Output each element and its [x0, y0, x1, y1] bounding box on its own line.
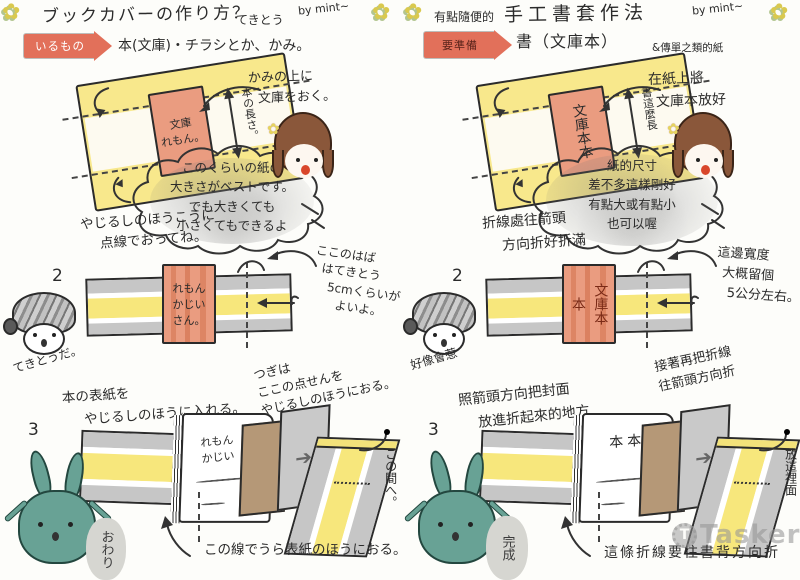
materials-text: 書（文庫本） [516, 32, 618, 53]
girl-character: ✿ [270, 112, 336, 208]
girl-eye [314, 158, 318, 162]
hat-knot [403, 318, 418, 335]
girl-mouth [701, 165, 710, 175]
step2-dash-line [246, 262, 248, 348]
girl-hair-lock [322, 150, 334, 178]
girl-mouth [301, 165, 310, 175]
girl-eye [296, 158, 300, 162]
girl-hair-lock [272, 150, 284, 178]
step3-gap-label: 放這裡面 [782, 448, 798, 524]
hat-character-mouth [441, 339, 447, 347]
hat-knot [3, 318, 18, 335]
step2-insert-note-line1: 本の表紙を [61, 386, 130, 408]
hat-character-eye [52, 333, 56, 337]
insert-direction-arrow [654, 294, 700, 312]
step1-note-line1: かみの上に [248, 69, 314, 88]
fold-curve-arrow [486, 84, 517, 120]
materials-badge: いるもの [24, 34, 96, 58]
step2-next-note: 接著再把折線 往箭頭方向折 [653, 342, 737, 396]
step3-book-label: れもん かじい [200, 431, 235, 466]
materials-badge: 要準備 [424, 32, 496, 58]
step2-book-label: 文庫本本 [567, 277, 612, 331]
step2-number: 2 [52, 266, 64, 286]
panel-chinese: ✿ ✿ 有點隨便的 手工書套作法 by mint~ 要準備 書（文庫本） &傳單… [400, 0, 800, 568]
note-pointer-arrow [596, 84, 664, 118]
rabbit-bubble-text: 完成 [498, 535, 517, 561]
step2-number: 2 [452, 266, 464, 286]
rabbit-eye [438, 522, 443, 527]
materials-subtext: &傳單之類的紙 [652, 42, 723, 56]
materials-badge-label: 要準備 [442, 37, 478, 53]
rabbit-speech-bubble: 完成 [486, 516, 528, 580]
panel-japanese: ✿ ✿ ブックカバーの作り方？ てきとう by mint~ いるもの 本(文庫)… [0, 0, 400, 568]
fold-line-arrow [156, 514, 196, 558]
watermark-gear-letter: T [680, 527, 690, 543]
watermark: T Tasker [672, 520, 800, 550]
badge-arrow-tip [494, 30, 512, 60]
page-title-prefix: 有點隨便的 [434, 10, 494, 26]
girl-eye [696, 158, 700, 162]
insert-direction-arrow [254, 294, 300, 312]
step2-book: 文庫本本 [562, 264, 616, 344]
page-title-tail: てきとう [236, 13, 284, 29]
cloud-line: 也可以喔 [544, 214, 720, 233]
step1-note-line1: 在紙上將 [648, 69, 705, 89]
fold-line-arrow [556, 514, 596, 558]
rabbit-head [18, 490, 96, 564]
rabbit-eye [38, 522, 43, 527]
rabbit-mouth [52, 532, 59, 541]
hat-character-eye [452, 333, 456, 337]
hat-character-eye [433, 333, 437, 337]
flower-doodle-icon: ✿ [770, 0, 788, 25]
step2-dash-line [646, 262, 648, 348]
hat-character-mouth [41, 339, 47, 347]
step2-book: れもん かじい さん。 [162, 264, 216, 344]
step3-number: 3 [28, 420, 40, 440]
width-note-line: 5公分左右。 [726, 284, 800, 309]
step1-note-line2: 文庫をおく。 [258, 89, 337, 109]
rabbit-mouth [452, 532, 459, 541]
hair-flower-icon: ✿ [667, 120, 680, 138]
step3-fold-note: この線でうら表紙のほうにおる。 [204, 542, 407, 560]
page-title: ブックカバーの作り方？ [42, 2, 251, 28]
girl-character: ✿ [670, 112, 736, 208]
step3-dash-line [198, 492, 200, 542]
flower-doodle-icon: ✿ [404, 0, 422, 25]
page-scribble [201, 502, 225, 506]
materials-badge-label: いるもの [35, 38, 85, 54]
rabbit-bubble-text: おわり [97, 530, 116, 569]
girl-hair-lock [722, 150, 734, 178]
byline: by mint~ [691, 0, 743, 19]
step1-note-line2: 文庫本放好 [656, 91, 727, 112]
girl-hair-lock [672, 150, 684, 178]
flower-doodle-icon: ✿ [372, 0, 390, 25]
rabbit-eye [68, 522, 73, 527]
watermark-brand: Tasker [700, 520, 800, 550]
rabbit-speech-bubble: おわり [86, 518, 126, 580]
step2-book-label: れもん かじい さん。 [173, 280, 206, 328]
flower-doodle-icon: ✿ [2, 0, 20, 25]
step3-dash-line [598, 492, 600, 542]
step3-gap-label: この間へ。 [382, 448, 398, 518]
width-curve-arrow [262, 246, 320, 274]
rabbit-eye [468, 522, 473, 527]
tutorial-illustration: ✿ ✿ ブックカバーの作り方？ てきとう by mint~ いるもの 本(文庫)… [0, 0, 800, 568]
page-title: 手工書套作法 [504, 1, 648, 28]
byline: by mint~ [297, 0, 349, 19]
girl-eye [714, 158, 718, 162]
badge-arrow-tip [94, 31, 112, 61]
fold-curve-arrow [86, 84, 117, 120]
step3-number: 3 [428, 420, 440, 440]
watermark-gear-icon: T [672, 523, 697, 548]
page-scribble [601, 502, 625, 506]
rabbit-head [418, 490, 496, 564]
note-pointer-arrow [196, 84, 264, 118]
step2-width-note: 這邊寬度 大概留個 5公分左右。 [714, 243, 800, 309]
hair-flower-icon: ✿ [267, 120, 280, 138]
step2-width-note: ここのはば はてきとう 5cmくらいが よいよ。 [308, 242, 407, 323]
width-curve-arrow [662, 246, 720, 274]
hat-character-eye [33, 333, 37, 337]
